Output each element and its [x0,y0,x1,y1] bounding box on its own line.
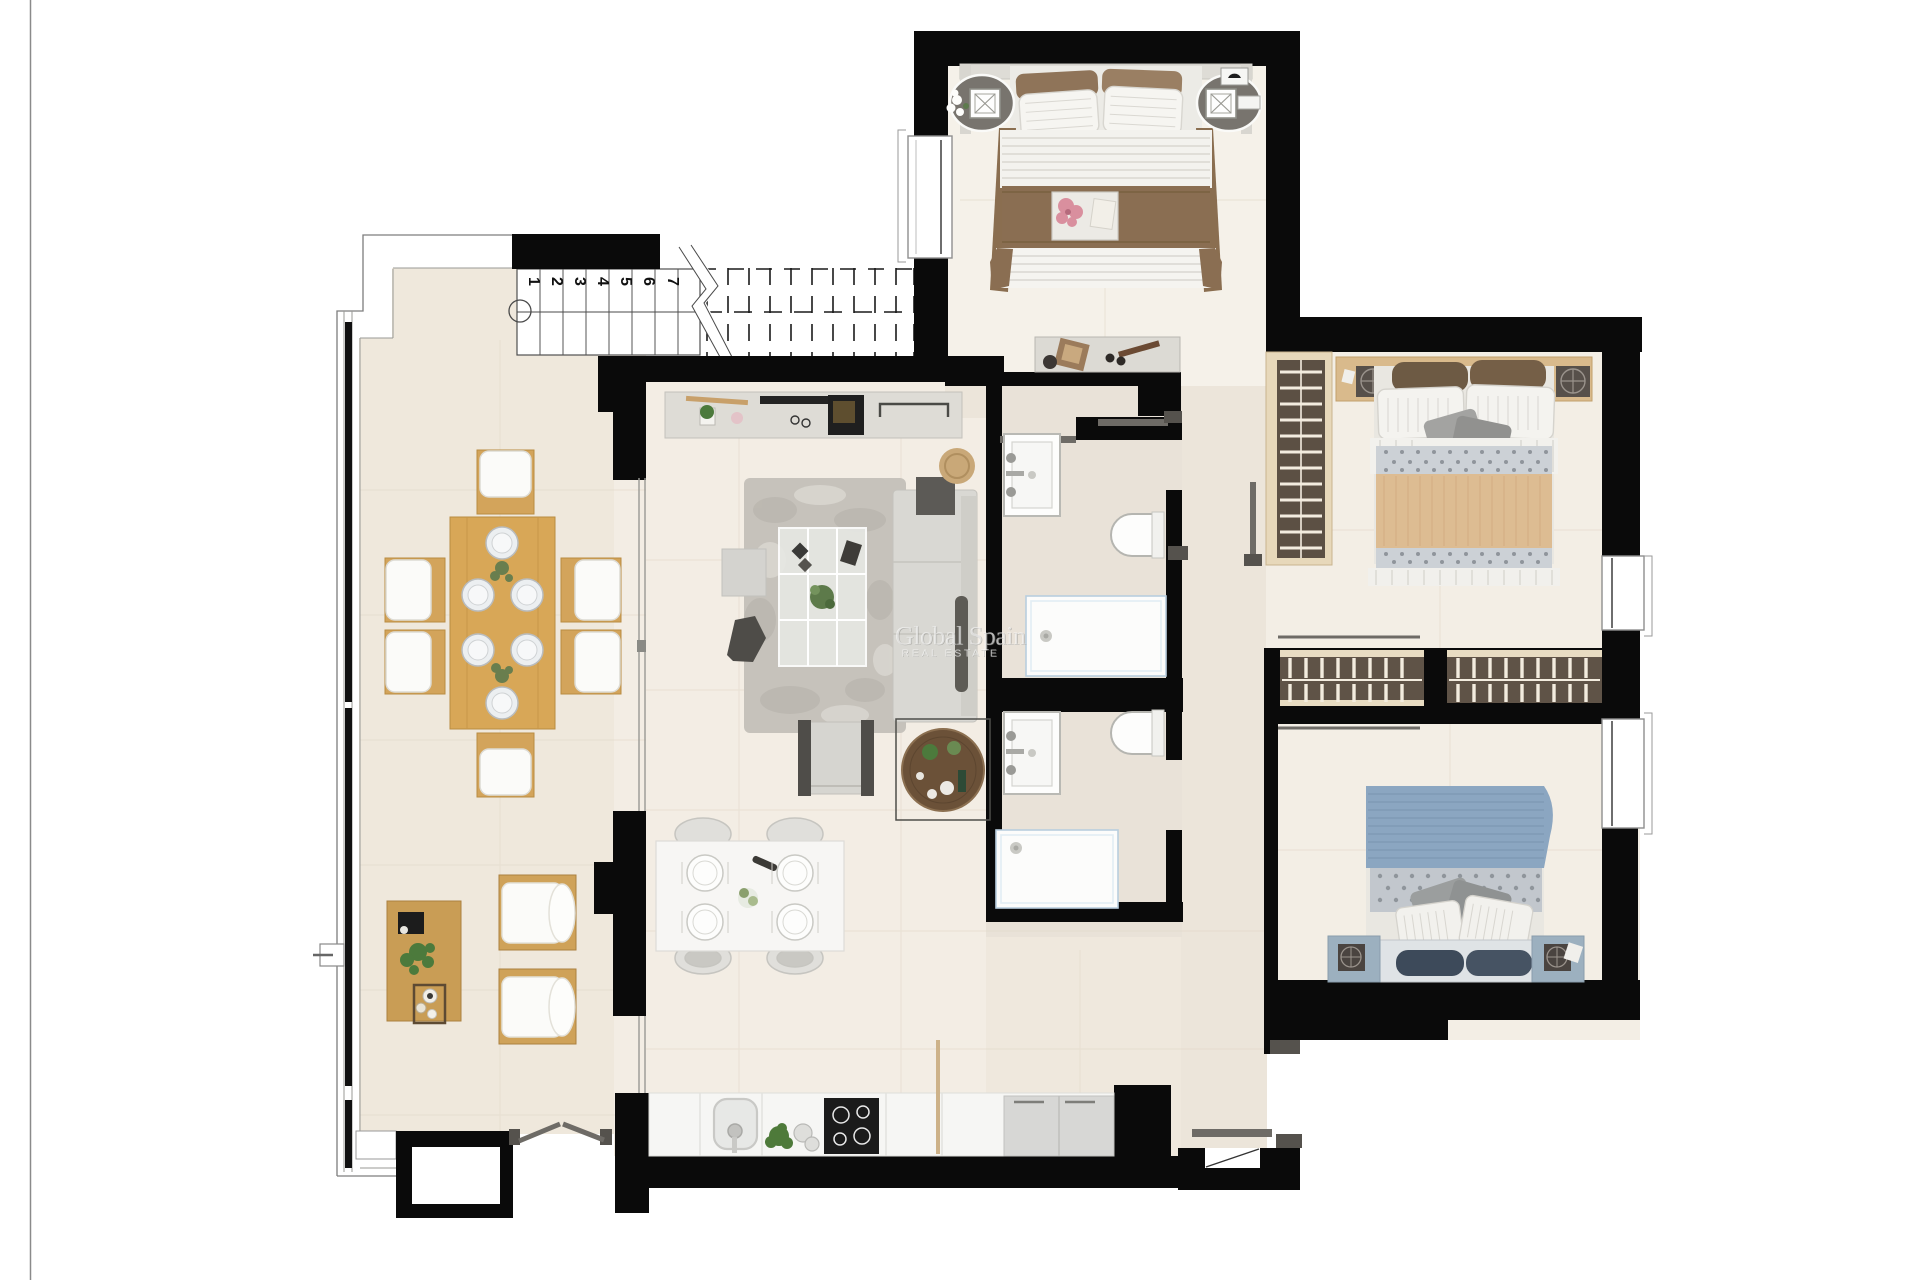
svg-text:REAL ESTATE: REAL ESTATE [902,648,1000,660]
svg-text:Global Spain: Global Spain [895,621,1026,650]
svg-text:3: 3 [571,277,588,286]
svg-text:2: 2 [548,277,565,286]
svg-text:4: 4 [594,277,611,286]
svg-text:1: 1 [525,277,542,286]
svg-text:7: 7 [664,277,681,286]
svg-text:5: 5 [617,277,634,286]
svg-text:6: 6 [640,277,657,286]
